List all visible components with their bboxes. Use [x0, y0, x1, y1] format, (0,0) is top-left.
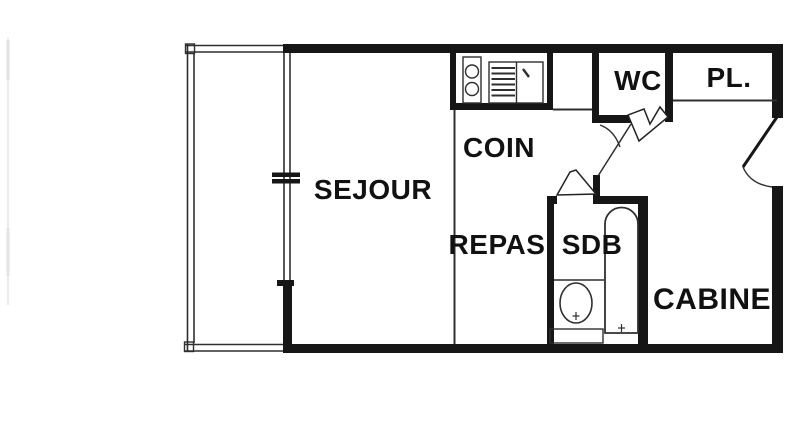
wc-wall-left: [592, 48, 599, 123]
kitchen-block: [450, 48, 593, 110]
sdb-wall-top-corner: [547, 196, 557, 204]
kitchen-wall-left: [450, 48, 456, 107]
wall-right-upper: [772, 44, 783, 118]
kitchen-sink-icon: [463, 57, 481, 103]
floor-plan: SEJOUR COIN REPAS WC PL. SDB CABINE: [0, 0, 800, 431]
counter-mark: [523, 69, 529, 77]
wall-bottom: [283, 344, 783, 353]
cooktop-icon: [489, 62, 543, 103]
entry-door-leaf: [743, 117, 777, 167]
vanity-shelf: [550, 329, 603, 343]
wc-door-icon: [628, 107, 668, 141]
room-label-sdb: SDB: [562, 231, 623, 259]
bathtub-icon: [605, 208, 638, 334]
wall-top: [283, 44, 783, 53]
wall-right-lower: [772, 186, 783, 353]
window-break-mark: [272, 179, 300, 184]
floor-plan-drawing: [0, 0, 800, 431]
balcony-outline: [184, 44, 284, 352]
room-label-coin: COIN: [463, 134, 535, 162]
kitchen-wall-right: [547, 48, 553, 107]
sdb-wall-left: [547, 197, 554, 344]
room-label-cabine: CABINE: [653, 285, 771, 315]
wall-below-window: [283, 284, 292, 345]
kitchen-wall-bottom: [450, 103, 553, 110]
wc-wall-right: [665, 48, 673, 122]
window-break-mark: [272, 173, 300, 178]
wc-wall-bottom: [592, 115, 633, 123]
sdb-fixtures: [550, 208, 638, 344]
sdb-door-icon: [557, 170, 596, 195]
hallway-door-leaf: [598, 124, 631, 176]
hallway-door-arc: [600, 125, 620, 147]
room-label-wc: WC: [614, 67, 662, 95]
sdb-wall-right: [638, 196, 648, 344]
balcony-window: [272, 44, 300, 345]
room-label-sejour: SEJOUR: [314, 176, 432, 204]
room-label-repas: REPAS: [449, 231, 546, 259]
balcony-corner-bottom: [185, 342, 194, 352]
scan-artifact: [7, 38, 10, 305]
room-label-placard: PL.: [706, 64, 751, 92]
entry-door-arc: [743, 167, 772, 187]
